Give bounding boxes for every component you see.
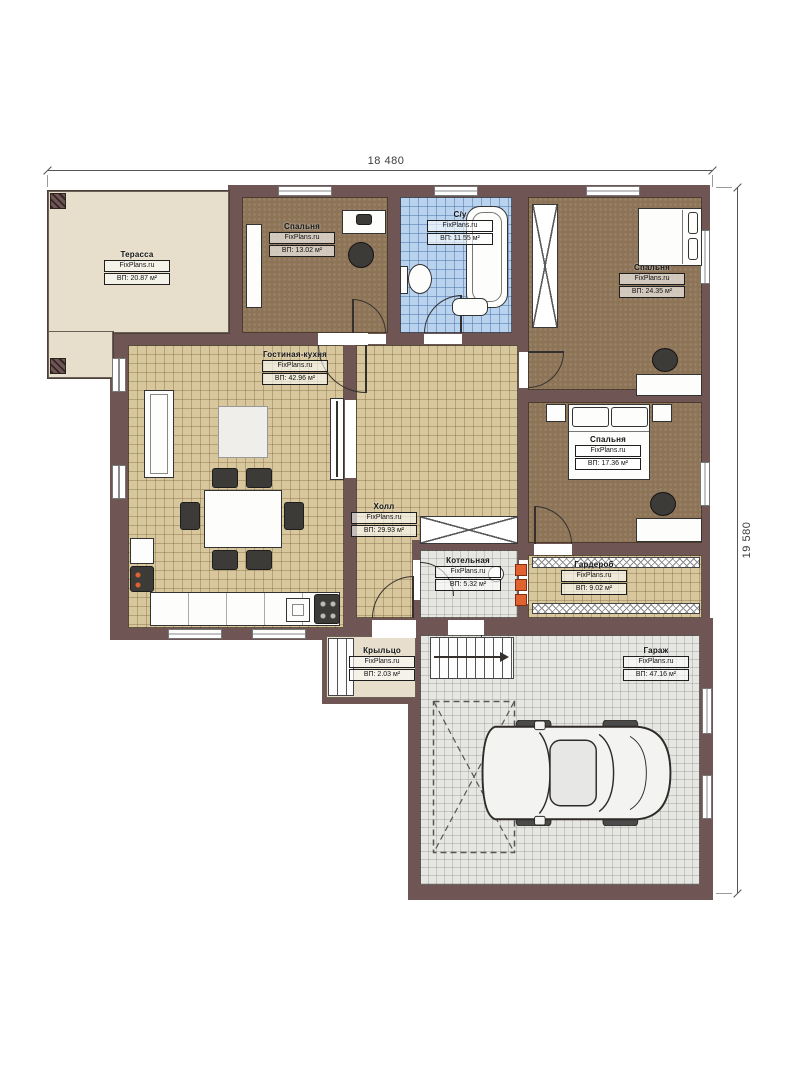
brand-watermark: FixPlans.ru <box>351 512 417 524</box>
extension-line <box>712 175 713 187</box>
room-name: С/у <box>427 210 493 219</box>
toilet-icon <box>400 266 408 294</box>
extension-line <box>716 893 732 894</box>
room-label-living-kitchen: Гостиная-кухня FixPlans.ru ВП: 42.96 м² <box>262 350 328 385</box>
window <box>168 629 222 639</box>
door-opening <box>448 620 484 635</box>
equipment-icon <box>515 579 527 591</box>
room-area: ВП: 13.02 м² <box>269 245 335 257</box>
stairs-arrow <box>434 656 502 658</box>
window <box>278 186 332 196</box>
equipment-icon <box>515 564 527 576</box>
room-label-bedroom-2: Спальня FixPlans.ru ВП: 24.35 м² <box>619 263 685 298</box>
extension-line <box>47 175 48 187</box>
room-area: ВП: 29.93 м² <box>351 525 417 537</box>
door-leaf <box>412 576 414 618</box>
room-name: Спальня <box>269 222 335 231</box>
room-name: Гараж <box>623 646 689 655</box>
room-area: ВП: 42.96 м² <box>262 373 328 385</box>
front-door-opening <box>372 620 416 638</box>
car-icon <box>478 720 674 826</box>
kitchen-counter-icon <box>150 592 340 626</box>
chair-icon <box>348 242 374 268</box>
bed-fold-line <box>682 210 683 264</box>
brand-watermark: FixPlans.ru <box>269 232 335 244</box>
brand-watermark: FixPlans.ru <box>623 656 689 668</box>
nightstand-icon <box>652 404 672 422</box>
brand-watermark: FixPlans.ru <box>575 445 641 457</box>
sink-icon <box>452 298 488 316</box>
room-area: ВП: 24.35 м² <box>619 286 685 298</box>
room-label-hall: Холл FixPlans.ru ВП: 29.93 м² <box>351 502 417 537</box>
chair-icon <box>246 468 272 488</box>
bed-fold-line <box>569 431 649 432</box>
window <box>252 629 306 639</box>
brand-watermark: FixPlans.ru <box>619 273 685 285</box>
room-name: Холл <box>351 502 417 511</box>
table-icon <box>218 406 268 458</box>
room-area: ВП: 9.02 м² <box>561 583 627 595</box>
door-leaf <box>365 345 367 393</box>
floor-plan: 18 480 19 580 <box>0 0 792 1080</box>
oven-icon <box>130 566 154 592</box>
room-area: ВП: 5.32 м² <box>435 579 501 591</box>
chair-icon <box>212 468 238 488</box>
chair-icon <box>212 550 238 570</box>
room-label-wardrobe: Гардероб FixPlans.ru ВП: 9.02 м² <box>561 560 627 595</box>
brand-watermark: FixPlans.ru <box>104 260 170 272</box>
extension-line <box>716 187 732 188</box>
dining-table-icon <box>204 490 282 548</box>
closet-icon <box>420 516 518 544</box>
toilet-bowl <box>408 264 432 294</box>
pillow-icon <box>611 407 648 427</box>
nightstand-icon <box>546 404 566 422</box>
room-area: ВП: 11.55 м² <box>427 233 493 245</box>
window <box>700 462 710 506</box>
room-name: Гардероб <box>561 560 627 569</box>
shelving-icon <box>532 603 700 614</box>
dimension-label-right: 19 580 <box>741 522 753 559</box>
brand-watermark: FixPlans.ru <box>561 570 627 582</box>
dimension-label-top: 18 480 <box>368 155 405 167</box>
room-label-bathroom: С/у FixPlans.ru ВП: 11.55 м² <box>427 210 493 245</box>
door-opening <box>519 352 528 388</box>
wardrobe-cabinet-icon <box>246 224 262 308</box>
room-label-boiler: Котельная FixPlans.ru ВП: 5.32 м² <box>435 556 501 591</box>
brand-watermark: FixPlans.ru <box>435 566 501 578</box>
door-opening <box>352 334 386 344</box>
window <box>112 358 126 392</box>
sliding-door-opening <box>345 400 356 478</box>
column-post-icon <box>50 193 66 209</box>
chair-icon <box>180 502 200 530</box>
door-leaf <box>352 299 354 333</box>
brand-watermark: FixPlans.ru <box>427 220 493 232</box>
door-opening <box>534 544 572 555</box>
brand-watermark: FixPlans.ru <box>349 656 415 668</box>
room-label-bedroom-1: Спальня FixPlans.ru ВП: 13.02 м² <box>269 222 335 257</box>
closet-icon <box>532 204 558 328</box>
window <box>434 186 478 196</box>
room-area: ВП: 17.36 м² <box>575 458 641 470</box>
chair-icon <box>650 492 676 516</box>
pillow-icon <box>688 212 698 234</box>
sliding-door-leaf <box>336 401 338 477</box>
room-name: Терасса <box>104 250 170 259</box>
stairs-arrowhead <box>500 652 509 662</box>
pillow-icon <box>688 238 698 260</box>
room-name: Спальня <box>575 435 641 444</box>
chair-icon <box>652 348 678 372</box>
laptop-icon <box>356 214 372 225</box>
fridge-icon <box>130 538 154 564</box>
tall-window-inner <box>150 394 168 474</box>
room-area: ВП: 47.16 м² <box>623 669 689 681</box>
desk-icon <box>636 518 702 542</box>
room-area: ВП: 20.87 м² <box>104 273 170 285</box>
stove-icon <box>314 594 340 624</box>
column-post-icon <box>50 358 66 374</box>
door-leaf <box>528 351 564 353</box>
brand-watermark: FixPlans.ru <box>262 360 328 372</box>
room-label-bedroom-3: Спальня FixPlans.ru ВП: 17.36 м² <box>575 435 641 470</box>
room-label-garage: Гараж FixPlans.ru ВП: 47.16 м² <box>623 646 689 681</box>
room-name: Крыльцо <box>349 646 415 655</box>
chair-icon <box>246 550 272 570</box>
window <box>586 186 640 196</box>
desk-icon <box>636 374 702 396</box>
dimension-line-top <box>47 170 713 171</box>
window <box>112 465 126 499</box>
window <box>702 688 712 734</box>
kitchen-sink-bowl <box>292 604 304 616</box>
room-label-terrace: Терасса FixPlans.ru ВП: 20.87 м² <box>104 250 170 285</box>
pillow-icon <box>572 407 609 427</box>
room-name: Спальня <box>619 263 685 272</box>
door-leaf <box>534 506 536 544</box>
window <box>702 775 712 819</box>
equipment-icon <box>515 594 527 606</box>
door-opening <box>413 560 420 600</box>
room-name: Гостиная-кухня <box>262 350 328 359</box>
room-name: Котельная <box>435 556 501 565</box>
dimension-line-right <box>737 187 738 893</box>
door-opening <box>424 334 462 344</box>
chair-icon <box>284 502 304 530</box>
room-area: ВП: 2.03 м² <box>349 669 415 681</box>
room-label-porch: Крыльцо FixPlans.ru ВП: 2.03 м² <box>349 646 415 681</box>
